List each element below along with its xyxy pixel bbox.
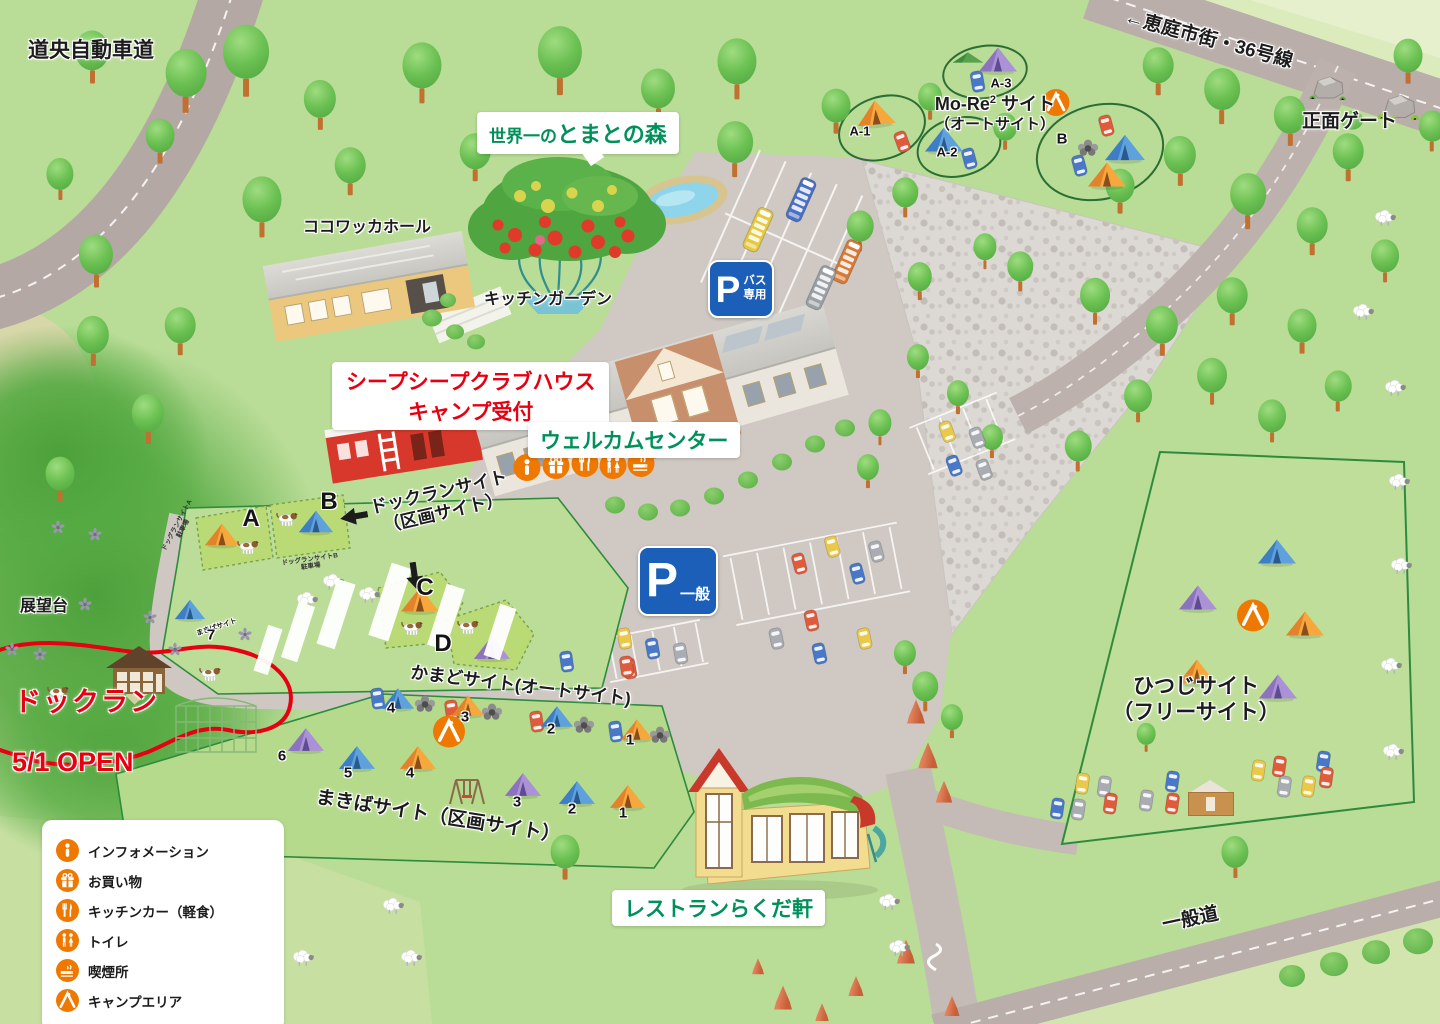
smoking-icon <box>56 959 79 982</box>
legend-item-label: キャンプエリア <box>88 991 182 1011</box>
legend-item: トイレ <box>56 929 270 952</box>
camp-area-icon <box>56 989 79 1012</box>
legend-panel: インフォメーションお買い物キッチンカー（軽食）トイレ喫煙所キャンプエリア <box>42 820 284 1024</box>
campground-map: 道央自動車道 ←恵庭市街・36号線 正面ゲート 一般道 ココワッカホール キッチ… <box>0 0 1440 1024</box>
information-icon <box>56 839 79 862</box>
legend-item: お買い物 <box>56 869 270 892</box>
legend-item-label: トイレ <box>88 931 129 951</box>
legend-item-label: キッチンカー（軽食） <box>88 901 223 921</box>
legend-item-label: インフォメーション <box>88 841 209 861</box>
kitchen-car-icon <box>56 899 79 922</box>
legend-item: キッチンカー（軽食） <box>56 899 270 922</box>
toilet-icon <box>56 929 79 952</box>
dogrun-site-b <box>270 495 350 558</box>
legend-item-label: お買い物 <box>88 871 142 891</box>
legend-item-label: 喫煙所 <box>88 961 129 981</box>
legend-item: キャンプエリア <box>56 989 270 1012</box>
legend-item: 喫煙所 <box>56 959 270 982</box>
legend-item: インフォメーション <box>56 839 270 862</box>
shopping-icon <box>56 869 79 892</box>
